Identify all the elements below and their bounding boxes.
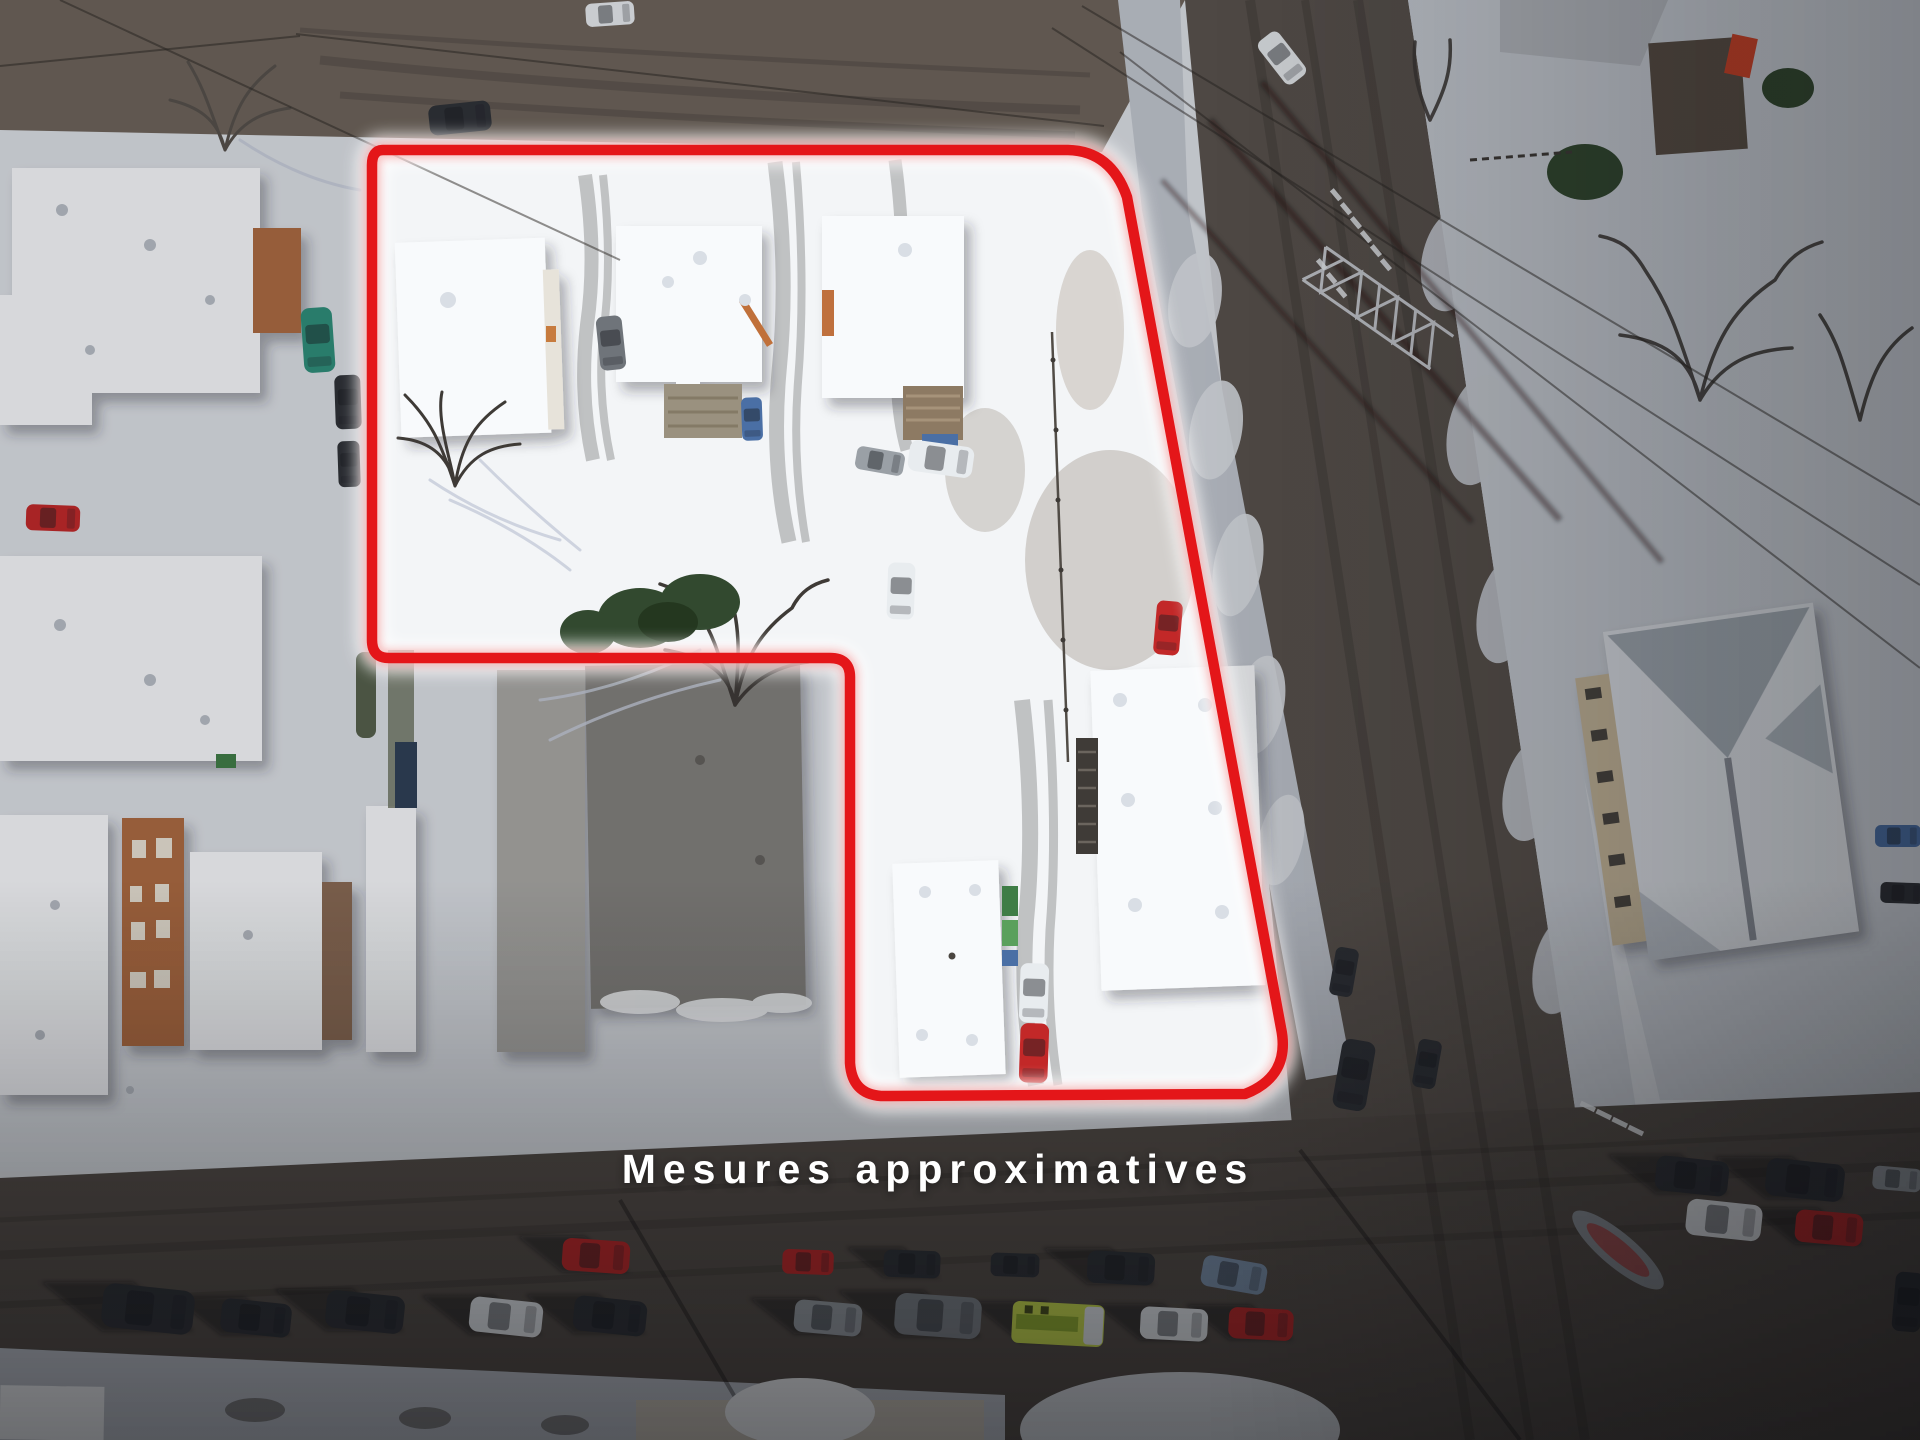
aerial-photo: Mesures approximatives (0, 0, 1920, 1440)
aerial-photo-canvas (0, 0, 1920, 1440)
measurement-disclaimer-label: Mesures approximatives (622, 1146, 1255, 1193)
outside-dim-overlay (0, 0, 1920, 1440)
